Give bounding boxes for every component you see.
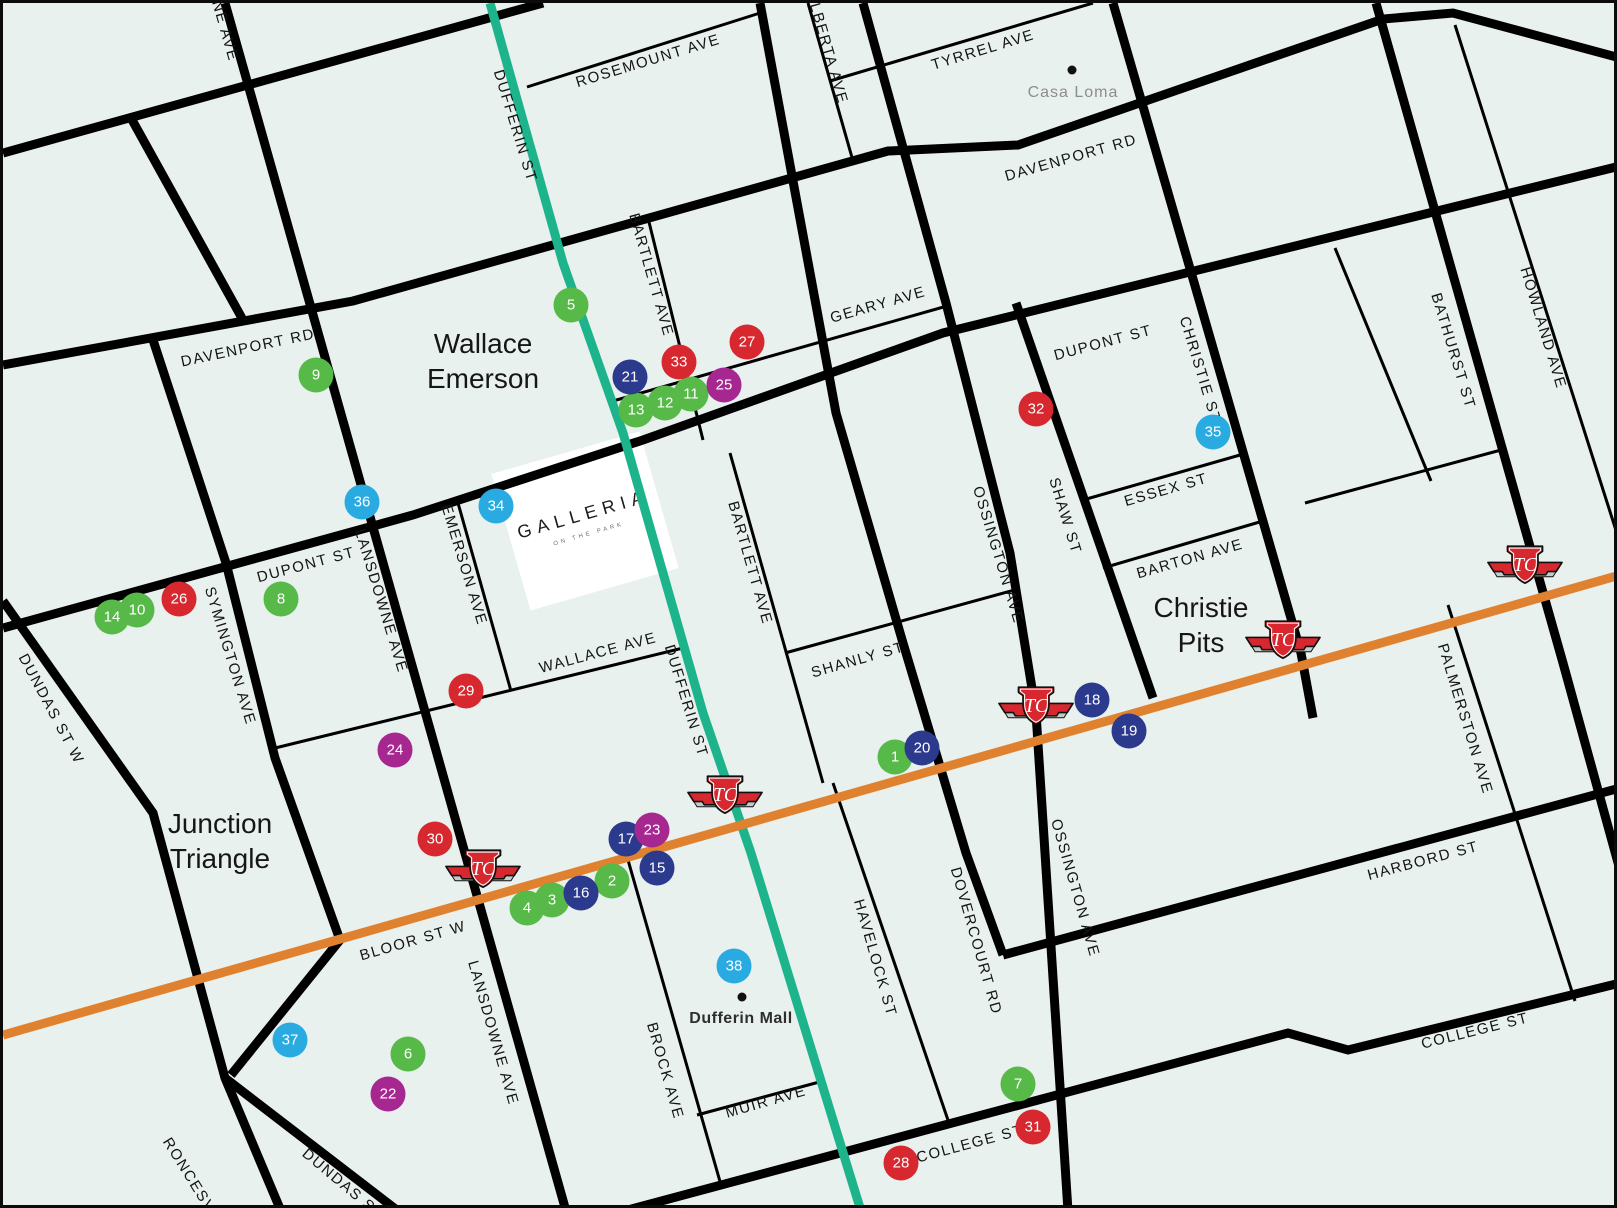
map-marker-24[interactable]: 24: [378, 733, 413, 768]
map-marker-35[interactable]: 35: [1196, 415, 1231, 450]
place-label-casa-loma: Casa Loma: [1028, 84, 1119, 102]
ttc-station-icon: TC: [686, 774, 764, 816]
map-marker-18[interactable]: 18: [1075, 683, 1110, 718]
ttc-station-icon: TC: [1486, 544, 1564, 586]
map-marker-7[interactable]: 7: [1001, 1067, 1036, 1102]
map-marker-2[interactable]: 2: [595, 864, 630, 899]
major-roads: [3, 3, 1617, 1208]
neighborhood-label-christie: ChristiePits: [1154, 590, 1249, 660]
ttc-station-3: TC: [997, 685, 1075, 727]
map-marker-37[interactable]: 37: [273, 1023, 308, 1058]
place-dot-dufferin-mall: [738, 993, 747, 1002]
map-marker-27[interactable]: 27: [730, 325, 765, 360]
map-marker-31[interactable]: 31: [1016, 1110, 1051, 1145]
ttc-station-icon: TC: [444, 848, 522, 890]
map-marker-19[interactable]: 19: [1112, 714, 1147, 749]
ttc-station-icon: TC: [997, 685, 1075, 727]
map-marker-26[interactable]: 26: [162, 582, 197, 617]
map-marker-15[interactable]: 15: [640, 851, 675, 886]
map-marker-33[interactable]: 33: [662, 345, 697, 380]
map-marker-28[interactable]: 28: [884, 1146, 919, 1181]
map-marker-32[interactable]: 32: [1019, 392, 1054, 427]
map-marker-16[interactable]: 16: [564, 876, 599, 911]
place-dot-casa-loma: [1068, 66, 1077, 75]
place-label-dufferin-mall: Dufferin Mall: [689, 1010, 792, 1028]
map-marker-4[interactable]: 4: [510, 891, 545, 926]
svg-text:TC: TC: [471, 859, 496, 880]
svg-text:TC: TC: [1271, 630, 1296, 651]
street-network: [3, 3, 1617, 1208]
map-marker-30[interactable]: 30: [418, 822, 453, 857]
map-marker-21[interactable]: 21: [613, 360, 648, 395]
svg-text:TC: TC: [713, 785, 738, 806]
map-marker-5[interactable]: 5: [554, 288, 589, 323]
map-marker-13[interactable]: 13: [619, 393, 654, 428]
map-marker-22[interactable]: 22: [371, 1077, 406, 1112]
svg-text:TC: TC: [1024, 696, 1049, 717]
ttc-station-2: TC: [686, 774, 764, 816]
map-marker-23[interactable]: 23: [635, 813, 670, 848]
road-dupont: [3, 166, 1617, 628]
ttc-station-icon: TC: [1244, 619, 1322, 661]
map-marker-34[interactable]: 34: [479, 489, 514, 524]
map-marker-9[interactable]: 9: [299, 358, 334, 393]
map-marker-6[interactable]: 6: [391, 1037, 426, 1072]
map-marker-8[interactable]: 8: [264, 582, 299, 617]
map-marker-20[interactable]: 20: [905, 731, 940, 766]
neighborhood-label-wallace: WallaceEmerson: [427, 326, 539, 396]
map-marker-14[interactable]: 14: [95, 600, 130, 635]
map-marker-29[interactable]: 29: [449, 674, 484, 709]
map-marker-36[interactable]: 36: [345, 485, 380, 520]
neighborhood-label-junction: JunctionTriangle: [168, 806, 272, 876]
map-marker-25[interactable]: 25: [707, 368, 742, 403]
ttc-station-5: TC: [1486, 544, 1564, 586]
map-canvas: GALLERIA ON THE PARK: [0, 0, 1617, 1208]
ttc-station-1: TC: [444, 848, 522, 890]
svg-text:TC: TC: [1513, 555, 1538, 576]
ttc-station-4: TC: [1244, 619, 1322, 661]
map-marker-12[interactable]: 12: [648, 386, 683, 421]
map-marker-38[interactable]: 38: [717, 949, 752, 984]
